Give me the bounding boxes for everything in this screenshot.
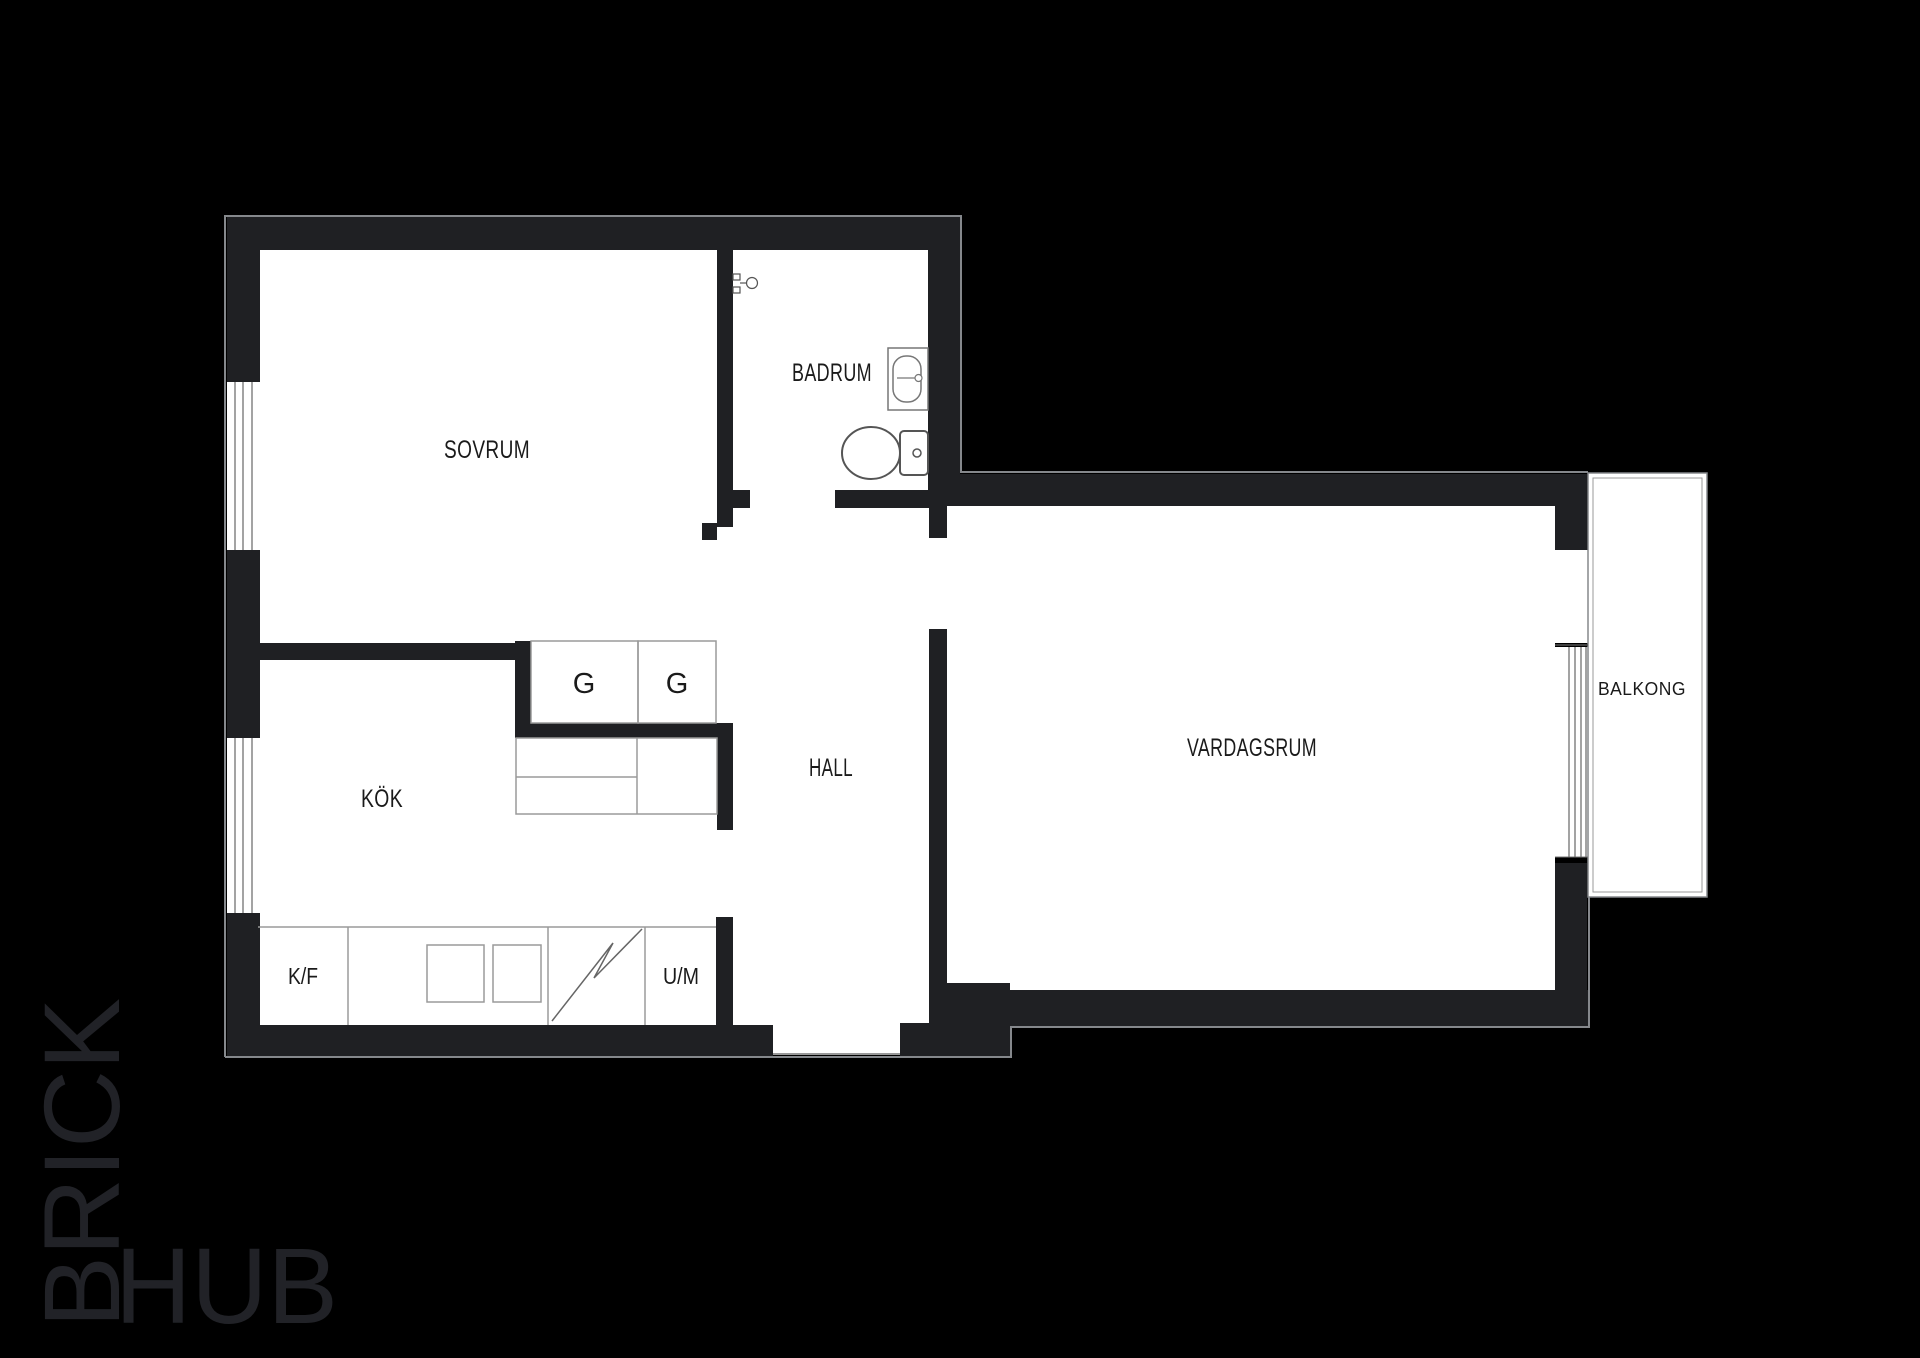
hall-livingroom-doorway [929,538,947,629]
closet-label-2: G [666,668,689,700]
wall-livingroom-right-upper [1555,474,1587,550]
floor-plan-page: SOVRUM BADRUM KÖK HALL VARDAGSRUM BALKON… [0,0,1920,1358]
wall-hall-right [929,629,947,1025]
room-label-vardagsrum: VARDAGSRUM [1187,734,1317,762]
balcony-door-opening [1555,550,1588,643]
wall-top [227,217,960,250]
floor-plan: SOVRUM BADRUM KÖK HALL VARDAGSRUM BALKON… [0,0,1920,1358]
wall-bathroom-door-jamb [733,490,750,508]
balcony-window-opening [1555,647,1588,857]
wall-bedroom-bathroom [717,250,733,527]
wall-hall-left-upper [717,723,733,830]
room-label-sovrum: SOVRUM [444,436,530,464]
appliance-label-kf: K/F [288,963,318,989]
room-label-hall: HALL [809,754,853,782]
wall-closet-side [515,641,531,727]
wall-left-upper [227,217,260,382]
sink-icon [888,348,928,410]
room-label-balkong: BALKONG [1598,679,1686,699]
wall-left-middle [227,550,260,738]
wall-livingroom-top [929,474,1587,506]
entrance-recess [773,1023,900,1055]
sink-tap [915,375,922,382]
wall-closet-bottom [515,723,717,738]
toilet-flush-button [913,449,921,457]
wall-hall-left-lower [716,917,733,1057]
closet-label-1: G [573,668,596,700]
wall-bathroom-bottom [835,490,930,508]
room-label-kok: KÖK [361,785,403,813]
wall-bedroom-door-jamb [702,523,717,540]
wall-bottom-left [227,1025,773,1057]
appliance-label-um: U/M [663,963,699,989]
wall-livingroom-bottom [947,990,1589,1026]
room-label-badrum: BADRUM [792,359,872,387]
wall-right-bathroom [928,217,960,490]
toilet-bowl [842,427,900,479]
toilet-icon [842,427,928,479]
wall-bedroom-kitchen [260,643,531,660]
watermark-hub: HUB [115,1225,338,1346]
